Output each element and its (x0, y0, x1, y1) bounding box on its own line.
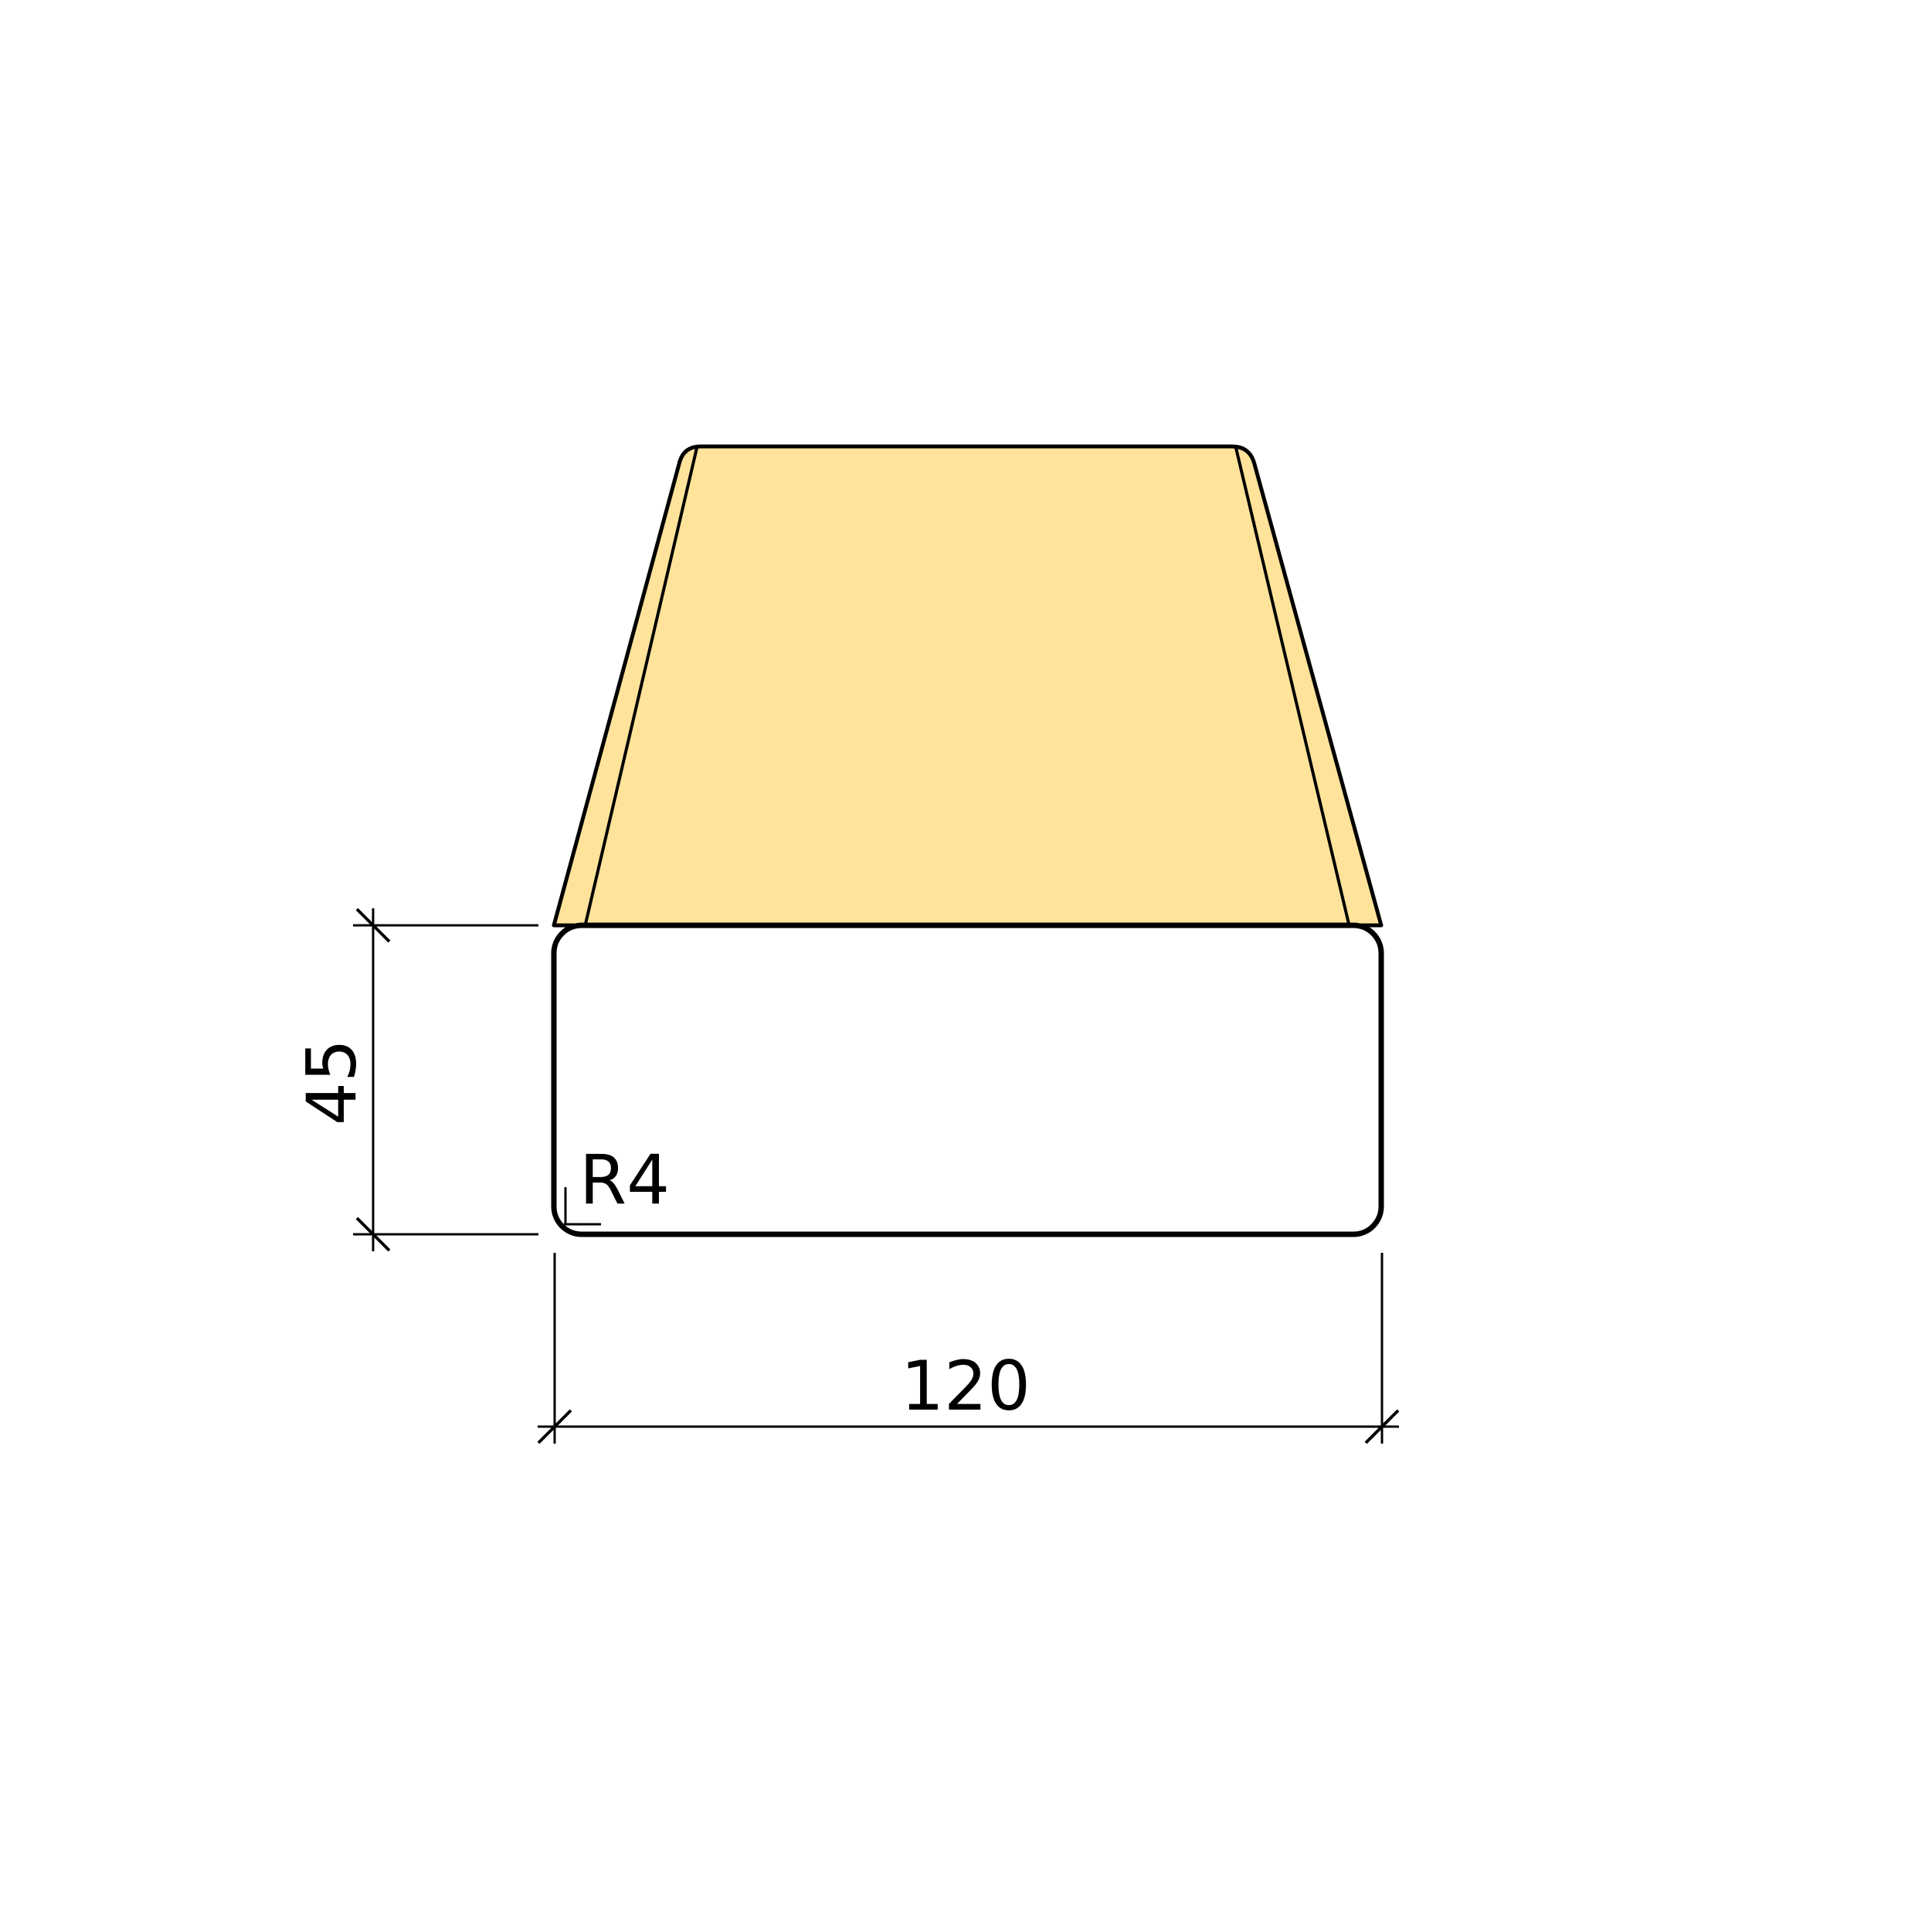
corner-radius-callout: R4 (564, 1140, 670, 1224)
drawing-canvas: 45 120 R4 (0, 0, 1932, 1931)
timber-top-face (554, 446, 1381, 925)
height-dimension-label: 45 (292, 1039, 372, 1125)
canvas-background (0, 0, 1932, 1931)
width-dimension-label: 120 (901, 1346, 1031, 1426)
corner-radius-label: R4 (579, 1140, 670, 1220)
timber-cross-section-drawing: 45 120 R4 (0, 0, 1932, 1931)
